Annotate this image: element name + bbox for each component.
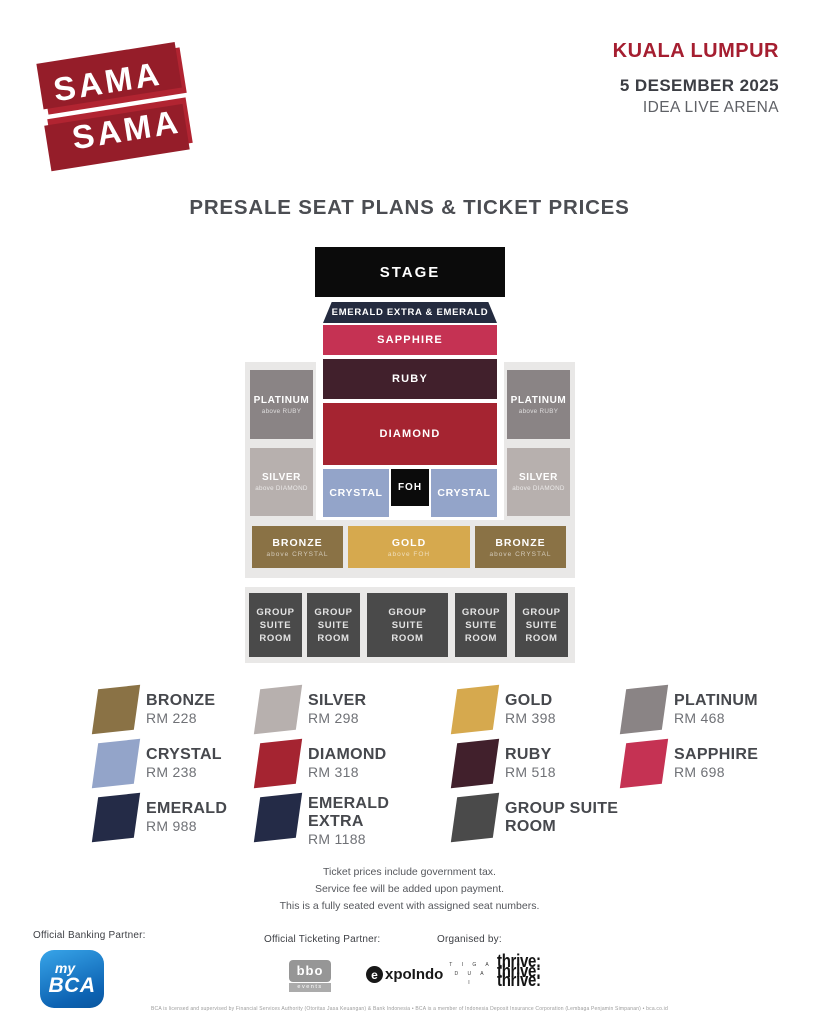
group-suite-room-5: GROUP SUITE ROOM: [515, 593, 568, 657]
legend-item-silver: SILVERRM 298: [257, 687, 366, 732]
legend-name: GOLD: [505, 692, 556, 710]
group-suite-room-2: GROUP SUITE ROOM: [307, 593, 360, 657]
event-info: KUALA LUMPUR 5 DESEMBER 2025 IDEA LIVE A…: [613, 40, 779, 117]
emerald-extra-emerald-section: EMERALD EXTRA & EMERALD: [323, 302, 497, 323]
ticketing-partner-label: Official Ticketing Partner:: [264, 934, 380, 945]
expoindo-e-icon: e: [366, 966, 383, 983]
legend-price: RM 238: [146, 764, 222, 781]
emerald-swatch: [92, 793, 140, 842]
emerald-extra-emerald-label: EMERALD EXTRA & EMERALD: [332, 307, 489, 318]
ticket-notes: Ticket prices include government tax. Se…: [0, 864, 819, 915]
sapphire-swatch: [620, 739, 668, 788]
sapphire-section: SAPPHIRE: [323, 325, 497, 355]
foh-section: FOH: [391, 469, 429, 506]
crystal-label: CRYSTAL: [437, 487, 490, 499]
platinum-swatch: [620, 685, 668, 734]
silver-section-left: SILVER above DIAMOND: [250, 448, 313, 516]
platinum-section-left: PLATINUM above RUBY: [250, 370, 313, 439]
gold-sublabel: above FOH: [388, 551, 430, 558]
event-venue: IDEA LIVE ARENA: [613, 99, 779, 117]
legend-price: RM 228: [146, 710, 215, 727]
group-suite-room-swatch: [451, 793, 499, 842]
legend-item-platinum: PLATINUMRM 468: [623, 687, 758, 732]
note-line-3: This is a fully seated event with assign…: [0, 898, 819, 915]
group-suite-room-label: GROUP SUITE ROOM: [388, 606, 426, 645]
legend-name: BRONZE: [146, 692, 215, 710]
bronze-sublabel: above CRYSTAL: [490, 551, 552, 558]
platinum-sublabel: above RUBY: [519, 408, 558, 415]
legend-name: GROUP SUITE ROOM: [505, 800, 623, 836]
gold-swatch: [451, 685, 499, 734]
thrive-text-layer: thrive:: [497, 976, 541, 985]
sapphire-label: SAPPHIRE: [377, 334, 443, 346]
legend-price: RM 298: [308, 710, 366, 727]
mybca-bca-text: BCA: [49, 975, 96, 996]
emerald-extra-swatch: [254, 793, 302, 842]
bronze-swatch: [92, 685, 140, 734]
legend-name: PLATINUM: [674, 692, 758, 710]
expoindo-logo: e xpoIndo: [366, 966, 443, 983]
group-suite-room-label: GROUP SUITE ROOM: [314, 606, 352, 645]
crystal-section-right: CRYSTAL: [431, 469, 497, 517]
silver-section-right: SILVER above DIAMOND: [507, 448, 570, 516]
crystal-swatch: [92, 739, 140, 788]
tiga-dua-line-3: I: [449, 979, 493, 988]
bronze-label: BRONZE: [272, 537, 322, 549]
legend-name: SILVER: [308, 692, 366, 710]
ruby-label: RUBY: [392, 373, 428, 385]
event-date: 5 DESEMBER 2025: [613, 76, 779, 96]
diamond-section: DIAMOND: [323, 403, 497, 465]
bbo-events-text: events: [289, 983, 331, 992]
silver-sublabel: above DIAMOND: [512, 485, 565, 492]
tiga-dua-line-2: D U A: [449, 970, 493, 979]
tiga-dua-logo: T I G A D U A I: [449, 961, 493, 988]
group-suite-room-1: GROUP SUITE ROOM: [249, 593, 302, 657]
legend-item-sapphire: SAPPHIRERM 698: [623, 741, 758, 786]
legend-price: RM 318: [308, 764, 387, 781]
legend-name: RUBY: [505, 746, 556, 764]
legend-item-crystal: CRYSTALRM 238: [95, 741, 222, 786]
stage-label: STAGE: [380, 264, 441, 281]
legend-price: RM 1188: [308, 831, 426, 848]
group-suite-room-label: GROUP SUITE ROOM: [522, 606, 560, 645]
bronze-section-left: BRONZE above CRYSTAL: [252, 526, 343, 568]
diamond-swatch: [254, 739, 302, 788]
silver-label: SILVER: [519, 472, 558, 483]
ruby-swatch: [451, 739, 499, 788]
silver-sublabel: above DIAMOND: [255, 485, 308, 492]
legend-item-gold: GOLDRM 398: [454, 687, 556, 732]
silver-label: SILVER: [262, 472, 301, 483]
mybca-logo: my BCA: [40, 950, 104, 1008]
sama-sama-logo: SAMA SAMA: [40, 34, 200, 174]
group-suite-room-label: GROUP SUITE ROOM: [462, 606, 500, 645]
bbo-logo-text: bbo: [289, 960, 331, 982]
legend-name: DIAMOND: [308, 746, 387, 764]
bca-disclaimer-text: BCA is licensed and supervised by Financ…: [0, 1006, 819, 1012]
legend-item-diamond: DIAMONDRM 318: [257, 741, 387, 786]
legend-price: RM 518: [505, 764, 556, 781]
crystal-section-left: CRYSTAL: [323, 469, 389, 517]
legend-item-emerald-extra: EMERALD EXTRARM 1188: [257, 795, 426, 848]
bronze-section-right: BRONZE above CRYSTAL: [475, 526, 566, 568]
diamond-label: DIAMOND: [380, 428, 441, 440]
legend-price: RM 698: [674, 764, 758, 781]
legend-name: EMERALD EXTRA: [308, 795, 426, 831]
ruby-section: RUBY: [323, 359, 497, 399]
silver-swatch: [254, 685, 302, 734]
legend-name: CRYSTAL: [146, 746, 222, 764]
page-title: PRESALE SEAT PLANS & TICKET PRICES: [0, 196, 819, 220]
gold-section: GOLD above FOH: [348, 526, 470, 568]
legend-price: RM 398: [505, 710, 556, 727]
group-suite-room-4: GROUP SUITE ROOM: [455, 593, 507, 657]
legend-name: SAPPHIRE: [674, 746, 758, 764]
bronze-label: BRONZE: [495, 537, 545, 549]
legend-item-ruby: RUBYRM 518: [454, 741, 556, 786]
legend-item-bronze: BRONZERM 228: [95, 687, 215, 732]
tiga-dua-line-1: T I G A: [449, 961, 493, 970]
platinum-label: PLATINUM: [254, 395, 310, 406]
group-suite-room-3: GROUP SUITE ROOM: [367, 593, 448, 657]
event-city: KUALA LUMPUR: [613, 40, 779, 63]
legend-item-emerald: EMERALDRM 988: [95, 795, 227, 840]
legend-name: EMERALD: [146, 800, 227, 818]
platinum-sublabel: above RUBY: [262, 408, 301, 415]
stage-section: STAGE: [315, 247, 505, 297]
note-line-2: Service fee will be added upon payment.: [0, 881, 819, 898]
crystal-label: CRYSTAL: [329, 487, 382, 499]
bronze-sublabel: above CRYSTAL: [267, 551, 329, 558]
legend-price: RM 988: [146, 818, 227, 835]
expoindo-text: xpoIndo: [385, 966, 443, 983]
banking-partner-label: Official Banking Partner:: [33, 930, 146, 941]
gold-label: GOLD: [392, 537, 426, 549]
group-suite-room-label: GROUP SUITE ROOM: [256, 606, 294, 645]
note-line-1: Ticket prices include government tax.: [0, 864, 819, 881]
organised-by-label: Organised by:: [437, 934, 502, 945]
legend-price: RM 468: [674, 710, 758, 727]
bbo-events-logo: bbo events: [289, 960, 331, 992]
platinum-label: PLATINUM: [511, 395, 567, 406]
legend-item-group-suite-room: GROUP SUITE ROOM: [454, 795, 623, 840]
thrive-logo: thrive: thrive: thrive:: [497, 957, 541, 985]
platinum-section-right: PLATINUM above RUBY: [507, 370, 570, 439]
foh-label: FOH: [398, 482, 422, 493]
